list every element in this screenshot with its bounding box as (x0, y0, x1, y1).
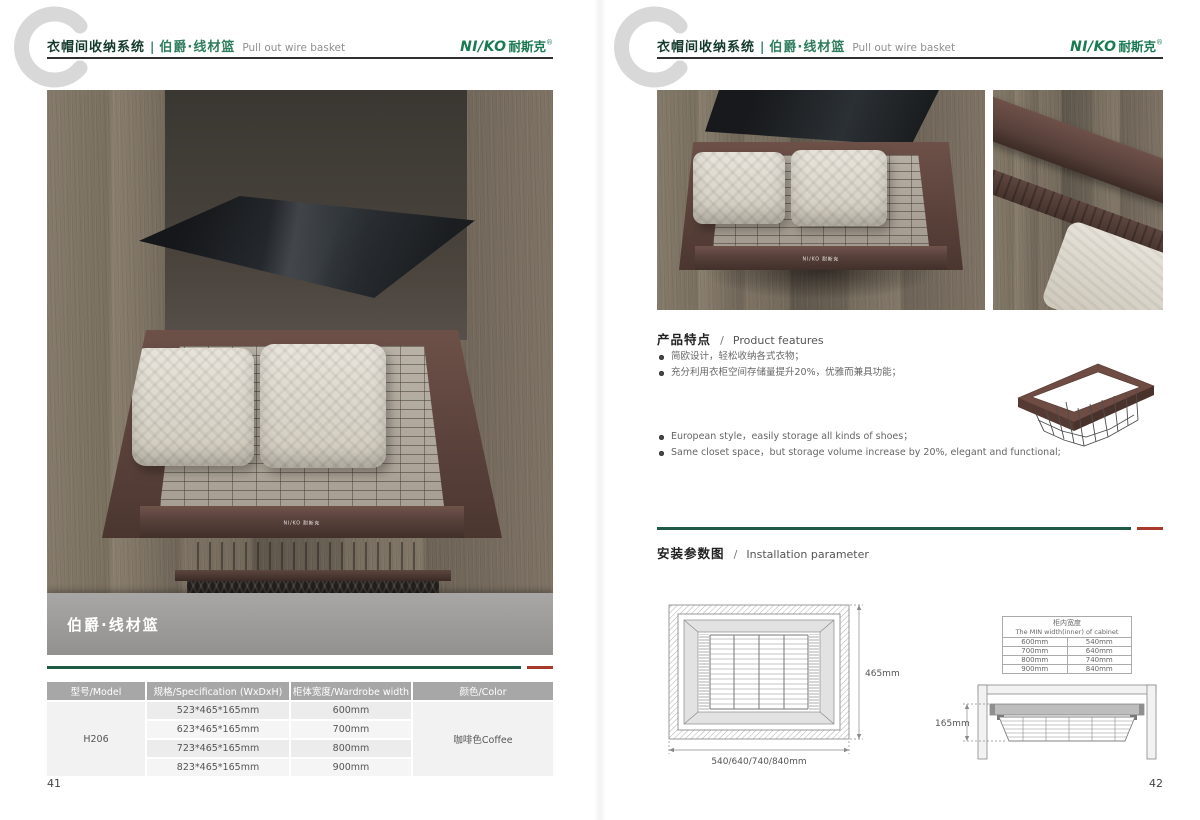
header-system-title: 衣帽间收纳系统 (47, 36, 145, 55)
spec-cell: 823*465*165mm (147, 759, 289, 776)
accent-rule (657, 527, 1163, 530)
heading-separator: / (720, 334, 724, 347)
sweater (791, 150, 887, 226)
glass-shelf (705, 90, 939, 146)
bullet-icon (659, 371, 664, 376)
height-dimension-label: 165mm (935, 719, 970, 729)
catalog-spread: 衣帽间收纳系统 | 伯爵·线材篮 Pull out wire basket NI… (0, 0, 1200, 820)
spec-table: 型号/Model 规格/Specification (WxDxH) 柜体宽度/W… (47, 682, 553, 776)
feature-item: 充分利用衣柜空间存储量提升20%，优雅而兼具功能； (657, 365, 901, 381)
page-number: 41 (47, 777, 61, 790)
table-row: 600mm 540mm (1003, 638, 1132, 647)
nisko-logo-latin: NI/KO (460, 39, 506, 55)
header-rule (47, 57, 553, 59)
spec-col-header: 规格/Specification (WxDxH) (147, 682, 289, 700)
spec-col-header: 柜体宽度/Wardrobe width (291, 682, 411, 700)
shoe-rack-rail (175, 570, 451, 581)
basket-front-rail: NI/KO 耐斯克 (140, 506, 464, 538)
registered-mark-icon: ® (546, 39, 553, 47)
page-header: 衣帽间收纳系统 | 伯爵·线材篮 Pull out wire basket (47, 36, 345, 55)
header-product-title: 伯爵·线材篮 (159, 36, 235, 55)
model-cell: H206 (47, 702, 145, 776)
page-right: 衣帽间收纳系统 | 伯爵·线材篮 Pull out wire basket NI… (600, 0, 1200, 820)
wire-basket: NI/KO 耐斯克 (679, 142, 963, 270)
center-fold (594, 0, 606, 820)
table-row: 800mm 740mm (1003, 656, 1132, 665)
header-system-title: 衣帽间收纳系统 (657, 36, 755, 55)
accent-rule (47, 666, 553, 669)
features-heading: 产品特点 / Product features (657, 329, 824, 348)
depth-dimension-label: 465mm (865, 669, 900, 679)
bullet-icon (659, 355, 664, 360)
table-row: 700mm 640mm (1003, 647, 1132, 656)
frame-corner-detail-photo (993, 90, 1163, 310)
heading-separator: / (734, 548, 738, 561)
page-header: 衣帽间收纳系统 | 伯爵·线材篮 Pull out wire basket (657, 36, 955, 55)
basket-logo: NI/KO 耐斯克 (284, 518, 320, 525)
spec-cell: 723*465*165mm (147, 740, 289, 757)
nisko-logo-cn: 耐斯克 (508, 39, 546, 54)
basket-logo: NI/KO 耐斯克 (803, 254, 839, 261)
accent-red-segment (527, 666, 553, 669)
wardrobe-photo: NI/KO 耐斯克 伯爵·线材篮 (47, 90, 553, 655)
installation-heading-en: Installation parameter (746, 548, 869, 561)
header-rule (657, 57, 1163, 59)
header-divider: | (760, 40, 764, 54)
spec-cell: 523*465*165mm (147, 702, 289, 719)
feature-item: 简欧设计，轻松收纳各式衣物； (657, 349, 901, 365)
feature-item: European style，easily storage all kinds … (657, 429, 1061, 445)
spec-col-header: 颜色/Color (413, 682, 553, 700)
header-divider: | (150, 40, 154, 54)
width-cell: 600mm (291, 702, 411, 719)
basket-top-photo: NI/KO 耐斯克 (657, 90, 985, 310)
bullet-icon (659, 451, 664, 456)
features-list-cn: 简欧设计，轻松收纳各式衣物； 充分利用衣柜空间存储量提升20%，优雅而兼具功能； (657, 349, 901, 381)
nisko-logo-cn: 耐斯克 (1118, 39, 1156, 54)
sweater (260, 344, 386, 468)
color-cell: 咖啡色Coffee (413, 702, 553, 776)
accent-green-segment (657, 527, 1131, 530)
sweater (132, 348, 254, 466)
nisko-logo: NI/KO耐斯克® (455, 36, 553, 55)
features-list-en: European style，easily storage all kinds … (657, 429, 1061, 461)
photo-caption: 伯爵·线材篮 (67, 614, 160, 635)
installation-heading: 安装参数图 / Installation parameter (657, 543, 869, 562)
page-left: 衣帽间收纳系统 | 伯爵·线材篮 Pull out wire basket NI… (0, 0, 600, 820)
spec-col-header: 型号/Model (47, 682, 145, 700)
registered-mark-icon: ® (1156, 39, 1163, 47)
accent-green-segment (47, 666, 521, 669)
top-view-diagram: 465mm 540/640/740/840mm (657, 597, 907, 771)
side-view-diagram: 165mm (933, 679, 1170, 771)
min-width-table-header: 柜内宽度 The MIN width(inner) of cabinet (1003, 617, 1132, 638)
width-dimension-label: 540/640/740/840mm (711, 757, 806, 767)
features-heading-cn: 产品特点 (657, 332, 711, 347)
wire-basket: NI/KO 耐斯克 (102, 330, 502, 538)
header-product-subtitle: Pull out wire basket (242, 42, 345, 54)
table-row: 900mm 840mm (1003, 665, 1132, 674)
header-product-title: 伯爵·线材篮 (769, 36, 845, 55)
nisko-logo-latin: NI/KO (1070, 39, 1116, 55)
header-product-subtitle: Pull out wire basket (852, 42, 955, 54)
width-cell: 900mm (291, 759, 411, 776)
features-heading-en: Product features (733, 334, 824, 347)
basket-shadow (703, 270, 939, 300)
feature-item: Same closet space，but storage volume inc… (657, 445, 1061, 461)
bullet-icon (659, 435, 664, 440)
accent-red-segment (1137, 527, 1163, 530)
sweater (693, 152, 785, 224)
basket-front-rail: NI/KO 耐斯克 (695, 246, 947, 270)
min-width-table: 柜内宽度 The MIN width(inner) of cabinet 600… (1002, 616, 1132, 674)
width-cell: 800mm (291, 740, 411, 757)
page-number: 42 (1137, 777, 1163, 790)
spec-cell: 623*465*165mm (147, 721, 289, 738)
width-cell: 700mm (291, 721, 411, 738)
nisko-logo: NI/KO耐斯克® (1065, 36, 1163, 55)
installation-heading-cn: 安装参数图 (657, 546, 725, 561)
